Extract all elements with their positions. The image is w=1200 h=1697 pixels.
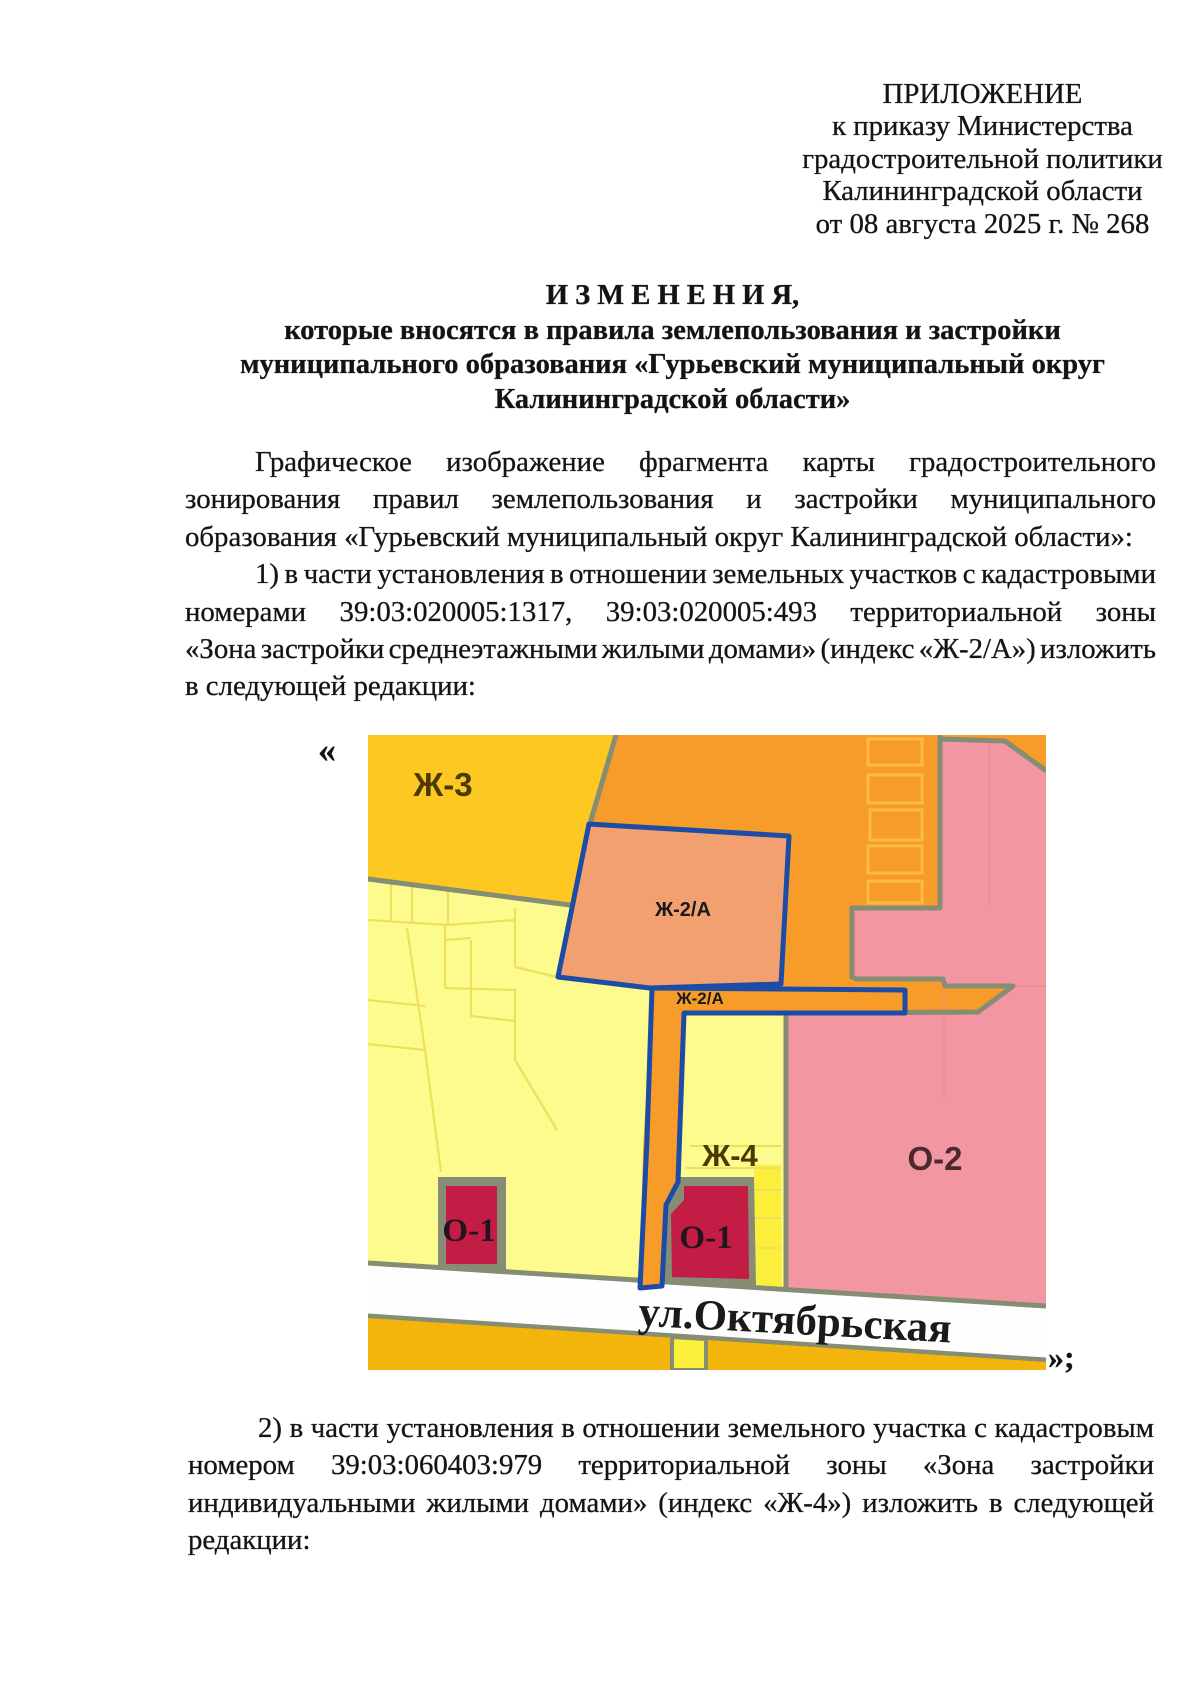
svg-text:Ж-3: Ж-3 [412,766,472,803]
svg-text:О-1: О-1 [442,1213,495,1249]
svg-text:Ж-2/А: Ж-2/А [654,899,711,921]
svg-text:Ж-4: Ж-4 [701,1138,758,1173]
svg-text:Ж-2/А: Ж-2/А [675,989,723,1008]
svg-text:О-1: О-1 [679,1220,732,1256]
svg-text:О-2: О-2 [907,1140,962,1177]
